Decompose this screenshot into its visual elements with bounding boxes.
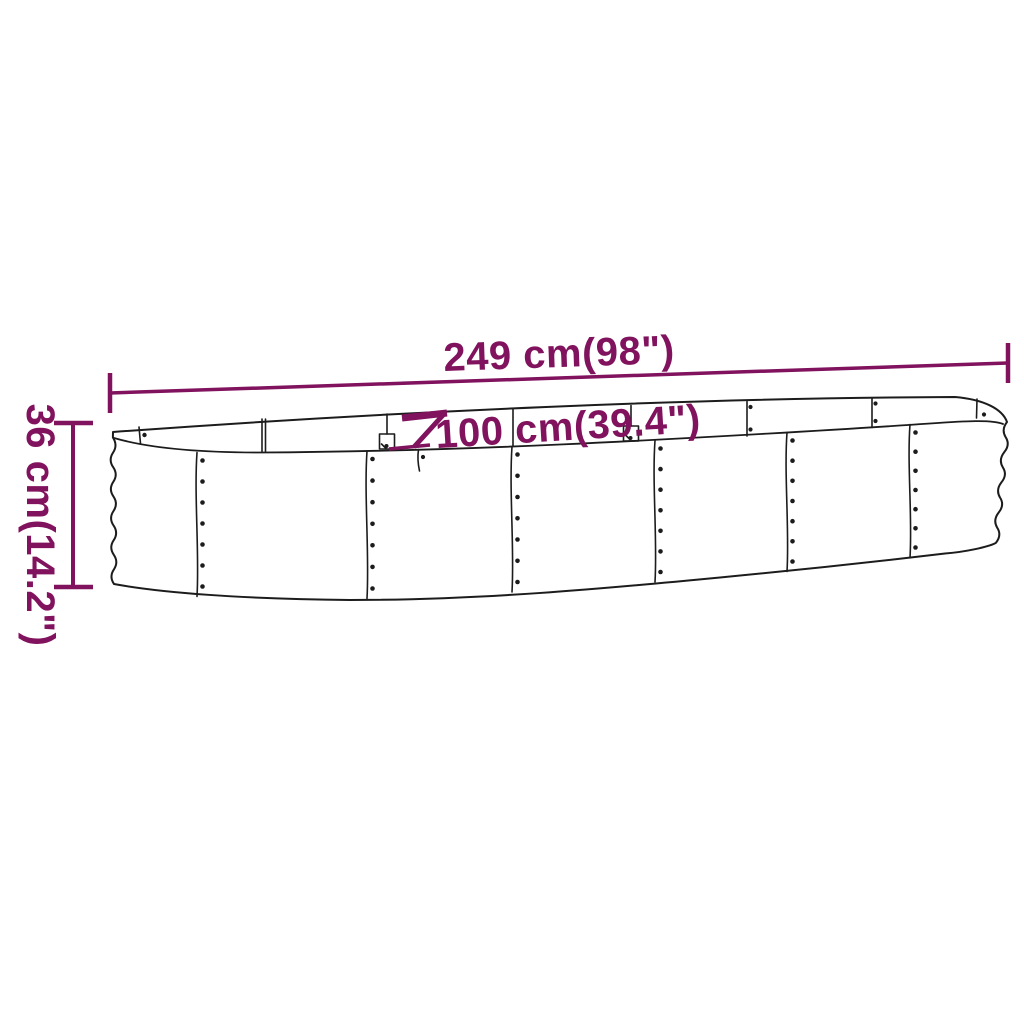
rivet-dot — [370, 500, 375, 505]
rivet-dot — [200, 458, 205, 463]
rim-seam — [977, 399, 978, 418]
panel-seam — [909, 425, 911, 558]
height-dimension-label: 36 cm(14.2") — [17, 375, 63, 675]
rivet-dot — [913, 488, 918, 493]
rivet-dot — [515, 495, 520, 500]
rivet-dot — [790, 559, 795, 564]
rivet-dot — [913, 507, 918, 512]
rivet-dot — [370, 543, 375, 548]
rivet-dot — [790, 438, 795, 443]
rivet-dot — [658, 467, 663, 472]
rivet-dot — [515, 537, 520, 542]
rivet-dot — [913, 430, 918, 435]
panel-seam — [511, 447, 513, 593]
rivet-dot — [370, 565, 375, 570]
rivet-dot — [913, 545, 918, 550]
rivet-dot — [658, 487, 663, 492]
rivet-dot — [790, 519, 795, 524]
rivet-dot — [790, 479, 795, 484]
planter-drawing — [0, 0, 1024, 1024]
panel-seam — [196, 453, 198, 597]
rivet-dot — [515, 516, 520, 521]
rivet-dot — [200, 500, 205, 505]
rivet-dot — [515, 474, 520, 479]
rivet-dot — [913, 469, 918, 474]
rivet-dot — [658, 549, 663, 554]
panel-seam — [786, 433, 788, 572]
rivet-dot — [515, 559, 520, 564]
rivet-dot — [790, 539, 795, 544]
rivet-dot — [658, 508, 663, 513]
rivet-dot — [200, 542, 205, 547]
panel-seam — [366, 451, 368, 599]
rivet-dot — [200, 521, 205, 526]
rivet-dot — [370, 586, 375, 591]
panel-seam — [654, 441, 656, 583]
rivet-dot — [790, 458, 795, 463]
rivet-dot — [200, 563, 205, 568]
rivet-dot — [658, 529, 663, 534]
rivet-dot — [370, 457, 375, 462]
rivet-dot — [370, 478, 375, 483]
dimension-diagram: 249 cm(98") 100 cm(39.4") 36 cm(14.2") — [0, 0, 1024, 1024]
rivet-dot — [370, 522, 375, 527]
rivet-dot — [200, 584, 205, 589]
rivet-dot — [658, 446, 663, 451]
rivet-dot — [790, 499, 795, 504]
rivet-dot — [913, 449, 918, 454]
rivet-dot — [658, 570, 663, 575]
rivet-dot — [913, 526, 918, 531]
rivet-dot — [200, 479, 205, 484]
rivet-dot — [515, 580, 520, 585]
